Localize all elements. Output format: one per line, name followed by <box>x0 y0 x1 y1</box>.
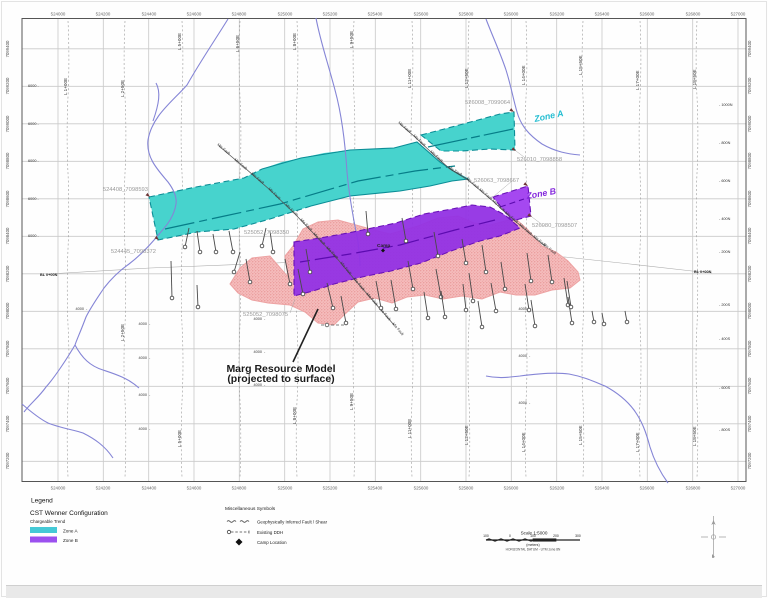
svg-text:L 15+50E: L 15+50E <box>578 425 583 445</box>
svg-text:524200: 524200 <box>96 12 111 17</box>
svg-text:527000: 527000 <box>731 486 746 491</box>
svg-text:- 200S: - 200S <box>719 303 731 307</box>
svg-text:BL 0+00N: BL 0+00N <box>40 273 58 277</box>
svg-text:7098600: 7098600 <box>5 190 10 207</box>
svg-text:525600: 525600 <box>414 486 429 491</box>
svg-text:7098400: 7098400 <box>747 227 752 244</box>
svg-text:7098200: 7098200 <box>5 265 10 282</box>
svg-text:7099000: 7099000 <box>5 115 10 132</box>
svg-text:L 11+00E: L 11+00E <box>407 419 412 438</box>
svg-text:Zone B: Zone B <box>63 538 78 543</box>
svg-text:L 18+50E: L 18+50E <box>692 426 697 446</box>
svg-text:4000: 4000 <box>139 322 147 326</box>
svg-text:(projected to surface): (projected to surface) <box>227 373 334 385</box>
svg-text:7099000: 7099000 <box>747 115 752 132</box>
svg-text:L 14+00E: L 14+00E <box>521 432 526 452</box>
svg-text:Mis Fault: Mis Fault <box>216 143 231 157</box>
svg-text:L 5+00E: L 5+00E <box>177 33 182 50</box>
svg-text:526800: 526800 <box>686 12 701 17</box>
svg-text:- 600N: - 600N <box>719 179 731 183</box>
svg-text:7097600: 7097600 <box>747 377 752 394</box>
svg-text:525052_7098350: 525052_7098350 <box>244 230 289 236</box>
svg-text:524400: 524400 <box>142 486 157 491</box>
svg-text:6000 -: 6000 - <box>28 159 40 163</box>
svg-text:526400: 526400 <box>595 12 610 17</box>
svg-text:524600: 524600 <box>187 486 202 491</box>
svg-text:-: - <box>149 427 151 431</box>
svg-text:- 400N: - 400N <box>719 217 731 221</box>
svg-text:7099200: 7099200 <box>747 77 752 94</box>
svg-text:6000 -: 6000 - <box>28 84 40 88</box>
svg-text:524000: 524000 <box>51 486 66 491</box>
svg-text:7098800: 7098800 <box>747 152 752 169</box>
svg-text:526600: 526600 <box>640 12 655 17</box>
svg-text:4000: 4000 <box>519 401 527 405</box>
svg-text:526000: 526000 <box>504 12 519 17</box>
svg-text:Mis Fault: Mis Fault <box>391 322 405 337</box>
svg-text:7098800: 7098800 <box>5 152 10 169</box>
svg-text:-: - <box>149 356 151 360</box>
svg-text:524000: 524000 <box>51 12 66 17</box>
svg-text:300: 300 <box>575 534 581 538</box>
svg-text:100: 100 <box>530 534 536 538</box>
svg-text:(meters): (meters) <box>526 543 539 547</box>
svg-text:6000 -: 6000 - <box>28 197 40 201</box>
svg-text:100: 100 <box>483 534 489 538</box>
svg-text:Miscellaneous Symbols: Miscellaneous Symbols <box>225 506 276 512</box>
svg-text:7098600: 7098600 <box>747 190 752 207</box>
svg-text:524600: 524600 <box>187 12 202 17</box>
svg-text:525052_7098075: 525052_7098075 <box>243 312 288 318</box>
svg-text:L 6+50E: L 6+50E <box>235 35 240 52</box>
svg-text:Mis Fault: Mis Fault <box>397 121 412 135</box>
svg-text:525200: 525200 <box>323 486 338 491</box>
svg-text:525800: 525800 <box>459 12 474 17</box>
svg-text:Mis Fault: Mis Fault <box>233 158 248 172</box>
svg-text:L 12+50E: L 12+50E <box>464 425 469 445</box>
svg-text:526400: 526400 <box>595 486 610 491</box>
svg-text:527000: 527000 <box>731 12 746 17</box>
svg-text:L 14+00E: L 14+00E <box>521 65 526 85</box>
svg-text:200: 200 <box>553 534 559 538</box>
svg-text:-: - <box>86 307 88 311</box>
svg-text:Zone A: Zone A <box>63 529 78 534</box>
svg-text:7098200: 7098200 <box>747 265 752 282</box>
svg-text:4000: 4000 <box>139 356 147 360</box>
svg-text:L 5+00E: L 5+00E <box>177 430 182 447</box>
svg-text:526800: 526800 <box>686 486 701 491</box>
svg-text:525400: 525400 <box>368 486 383 491</box>
svg-text:6000 -: 6000 - <box>28 234 40 238</box>
svg-text:4000: 4000 <box>76 307 84 311</box>
svg-text:Camp Location: Camp Location <box>257 540 287 545</box>
svg-text:524445_7098372: 524445_7098372 <box>111 249 156 255</box>
svg-text:L 9+50E: L 9+50E <box>349 31 354 48</box>
svg-text:BL 0+00N: BL 0+00N <box>694 270 712 274</box>
svg-text:HORIZONTAL DATUM - UTM zone 8N: HORIZONTAL DATUM - UTM zone 8N <box>506 548 561 552</box>
svg-text:-: - <box>529 354 531 358</box>
svg-text:4000: 4000 <box>139 427 147 431</box>
svg-text:526063_7098667: 526063_7098667 <box>474 178 519 184</box>
svg-text:- 200N: - 200N <box>719 250 731 254</box>
svg-text:526010_7098858: 526010_7098858 <box>517 157 562 163</box>
svg-text:7097400: 7097400 <box>5 415 10 432</box>
svg-text:7097200: 7097200 <box>5 452 10 469</box>
svg-text:7097800: 7097800 <box>747 340 752 357</box>
svg-text:Existing DDH: Existing DDH <box>257 530 283 535</box>
svg-text:6000 -: 6000 - <box>28 122 40 126</box>
svg-text:7098000: 7098000 <box>5 302 10 319</box>
svg-text:526000: 526000 <box>504 486 519 491</box>
svg-text:-: - <box>529 401 531 405</box>
svg-text:526200: 526200 <box>550 12 565 17</box>
svg-text:L 9+50E: L 9+50E <box>349 393 354 410</box>
svg-text:L 1+00E: L 1+00E <box>63 78 68 95</box>
svg-text:524400: 524400 <box>142 12 157 17</box>
svg-text:7098000: 7098000 <box>747 302 752 319</box>
svg-text:L 12+50E: L 12+50E <box>464 68 469 88</box>
svg-text:524800: 524800 <box>232 12 247 17</box>
svg-text:525000: 525000 <box>278 486 293 491</box>
svg-text:L 11+00E: L 11+00E <box>407 69 412 88</box>
svg-text:L 17+00E: L 17+00E <box>635 70 640 90</box>
svg-text:L 18+50E: L 18+50E <box>692 69 697 89</box>
svg-text:Geophysically Inferred Fault /: Geophysically Inferred Fault / Shear <box>257 520 328 525</box>
svg-text:L 2+50E: L 2+50E <box>120 80 125 97</box>
svg-text:7099400: 7099400 <box>747 40 752 57</box>
svg-text:4000: 4000 <box>139 393 147 397</box>
svg-text:- 800S: - 800S <box>719 428 731 432</box>
svg-text:526008_7099064: 526008_7099064 <box>465 100 511 106</box>
svg-text:4000: 4000 <box>519 307 527 311</box>
svg-text:- 400S: - 400S <box>719 337 731 341</box>
svg-text:524800: 524800 <box>232 486 247 491</box>
svg-text:Legend: Legend <box>31 498 53 505</box>
svg-text:7097200: 7097200 <box>747 452 752 469</box>
svg-text:7097400: 7097400 <box>747 415 752 432</box>
svg-text:L 8+00E: L 8+00E <box>292 407 297 424</box>
svg-text:- 1000N: - 1000N <box>719 103 733 107</box>
svg-text:526200: 526200 <box>550 486 565 491</box>
svg-text:7099400: 7099400 <box>5 40 10 57</box>
svg-text:525000: 525000 <box>278 12 293 17</box>
svg-text:L 8+00E: L 8+00E <box>292 33 297 50</box>
svg-text:L 17+00E: L 17+00E <box>635 432 640 452</box>
svg-text:4000: 4000 <box>254 350 262 354</box>
svg-text:-: - <box>149 322 151 326</box>
svg-text:524200: 524200 <box>96 486 111 491</box>
svg-text:7097800: 7097800 <box>5 340 10 357</box>
svg-text:525600: 525600 <box>414 12 429 17</box>
svg-text:525800: 525800 <box>459 486 474 491</box>
svg-text:7098400: 7098400 <box>5 227 10 244</box>
svg-text:525400: 525400 <box>368 12 383 17</box>
svg-text:- 800N: - 800N <box>719 141 731 145</box>
svg-text:-: - <box>264 350 266 354</box>
svg-text:L 15+50E: L 15+50E <box>578 55 583 75</box>
svg-text:4000: 4000 <box>519 354 527 358</box>
svg-text:0: 0 <box>509 534 511 538</box>
svg-text:7099200: 7099200 <box>5 77 10 94</box>
svg-text:Mis Fault: Mis Fault <box>478 188 493 202</box>
svg-text:526080_7098507: 526080_7098507 <box>532 223 577 229</box>
svg-text:Chargeable Trend: Chargeable Trend <box>30 519 66 524</box>
svg-text:525200: 525200 <box>323 12 338 17</box>
svg-text:526600: 526600 <box>640 486 655 491</box>
svg-text:Camp: Camp <box>377 243 390 249</box>
svg-text:- 600S: - 600S <box>719 386 731 390</box>
svg-text:524408_7098593: 524408_7098593 <box>103 187 148 193</box>
svg-text:Zone A: Zone A <box>532 108 564 124</box>
svg-text:7097600: 7097600 <box>5 377 10 394</box>
svg-text:-: - <box>149 393 151 397</box>
svg-text:L 2+50E: L 2+50E <box>120 324 125 341</box>
svg-text:CST Wenner Configuration: CST Wenner Configuration <box>30 510 108 517</box>
